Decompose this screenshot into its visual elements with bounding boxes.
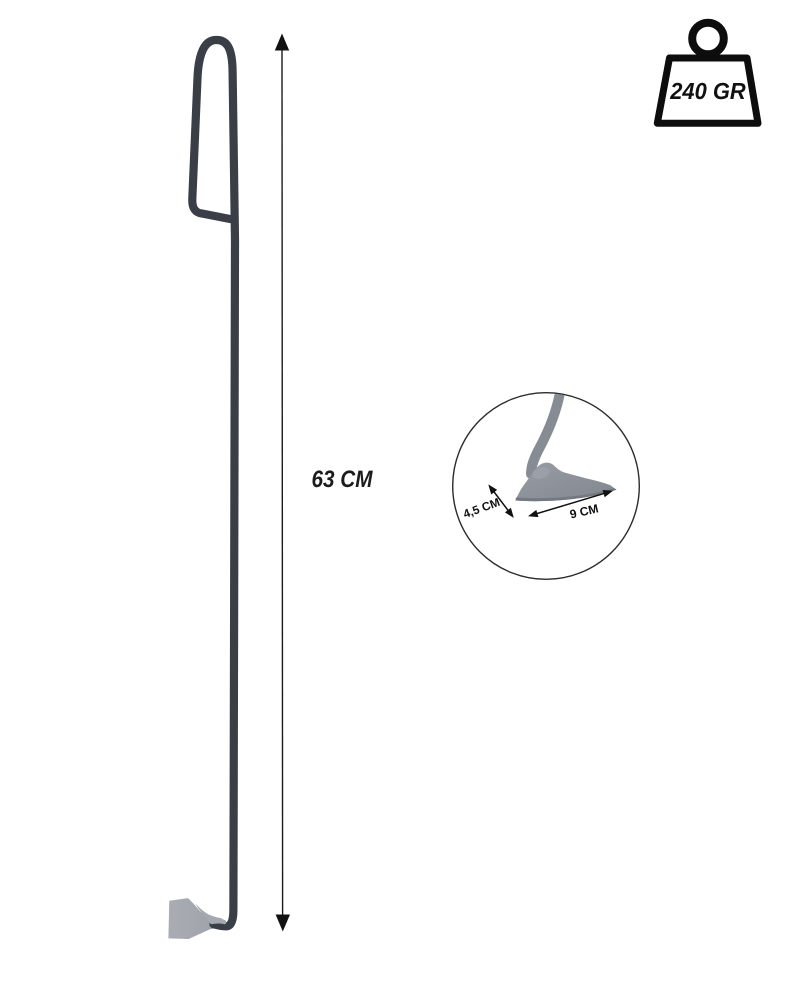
svg-text:240 GR: 240 GR (669, 78, 746, 104)
svg-text:63 CM: 63 CM (312, 466, 374, 493)
